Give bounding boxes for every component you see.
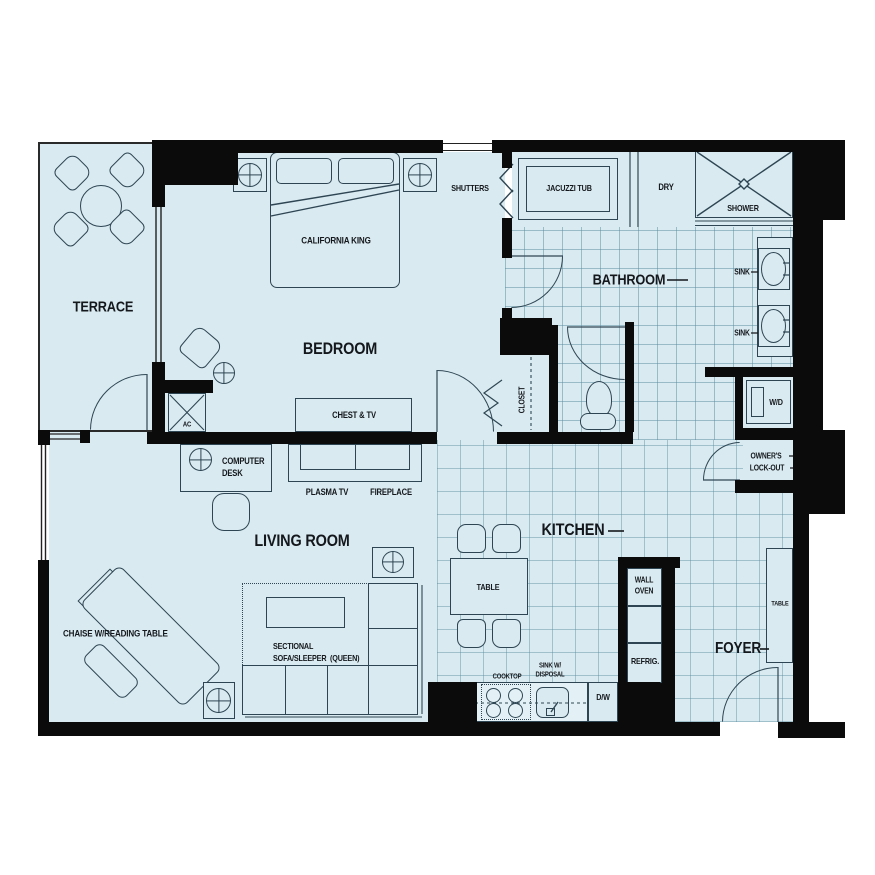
label-chest-tv: CHEST & TV xyxy=(332,410,376,420)
label-chaise: CHAISE W/READING TABLE xyxy=(63,629,168,640)
label-sectional-2: SOFA/SLEEPER (QUEEN) xyxy=(273,653,359,663)
kitchen-cabinet-box xyxy=(627,606,662,643)
wall xyxy=(618,568,627,683)
wall xyxy=(38,560,49,722)
sink-basin-upper xyxy=(761,252,786,286)
room-label-bedroom: BEDROOM xyxy=(303,339,377,359)
wall xyxy=(793,220,823,432)
label-fireplace: FIREPLACE xyxy=(370,487,412,497)
cabinet-divider xyxy=(355,444,356,470)
desk-chair xyxy=(212,493,250,531)
wall xyxy=(705,367,793,377)
label-washer-dryer: W/D xyxy=(769,397,783,407)
sectional-cushion-line xyxy=(368,665,369,715)
label-jacuzzi: JACUZZI TUB xyxy=(546,183,592,193)
label-owners-lockout-1: OWNER'S xyxy=(750,452,781,461)
label-wall-oven-2: OVEN xyxy=(635,587,654,596)
bed-pillow xyxy=(276,158,332,184)
room-label-kitchen: KITCHEN xyxy=(541,520,604,540)
wall xyxy=(735,377,743,440)
wall xyxy=(38,722,720,736)
dishwasher-box xyxy=(588,682,618,722)
lamp-icon xyxy=(189,448,212,471)
label-shower: SHOWER xyxy=(727,203,759,213)
room-label-bathroom: BATHROOM xyxy=(593,272,666,289)
kitchen-faucet xyxy=(546,708,555,716)
label-cooktop: COOKTOP xyxy=(493,674,522,681)
wall xyxy=(502,308,512,318)
room-label-foyer: FOYER xyxy=(715,640,761,658)
wall xyxy=(743,428,793,440)
kitchen-chair xyxy=(492,619,521,648)
wall xyxy=(735,480,743,493)
wall xyxy=(238,140,443,153)
wall xyxy=(38,430,50,445)
label-dry: DRY xyxy=(658,182,673,192)
sectional-cushion-line xyxy=(285,665,286,715)
wall xyxy=(625,322,634,432)
wall xyxy=(502,152,512,168)
wall xyxy=(793,514,809,724)
label-closet: CLOSET xyxy=(518,387,527,414)
lamp-icon xyxy=(238,163,262,187)
wall xyxy=(793,430,845,514)
wall xyxy=(549,325,558,432)
lamp-icon xyxy=(408,163,432,187)
sink-basin-lower xyxy=(761,309,786,343)
wall xyxy=(793,140,845,220)
wall xyxy=(500,318,552,355)
lamp-icon xyxy=(206,688,231,713)
label-sink-upper: SINK xyxy=(734,268,750,277)
sectional-cushion-line xyxy=(327,665,328,715)
cooktop-burner xyxy=(508,703,523,718)
label-sink-disposal-1: SINK W/ xyxy=(539,663,561,670)
toilet-bowl xyxy=(586,381,612,417)
label-computer-desk-1: COMPUTER xyxy=(222,456,264,466)
cooktop-burner xyxy=(486,703,501,718)
label-refrigerator: REFRIG. xyxy=(631,656,659,666)
label-ac: AC xyxy=(183,422,191,429)
sectional-cushion-line xyxy=(368,628,418,629)
label-computer-desk-2: DESK xyxy=(222,468,243,478)
wall xyxy=(505,140,793,152)
bedroom-window xyxy=(443,143,492,151)
washer-dryer-door xyxy=(751,387,764,417)
label-california-king: CALIFORNIA KING xyxy=(301,236,370,247)
floor-plan: TERRACE BEDROOM BATHROOM LIVING ROOM KIT… xyxy=(0,0,875,875)
wall xyxy=(428,682,477,726)
wall xyxy=(165,380,213,393)
kitchen-chair xyxy=(457,619,486,648)
lamp-icon xyxy=(213,362,235,384)
kitchen-chair xyxy=(492,524,521,553)
wall xyxy=(497,432,633,444)
label-foyer-table: TABLE xyxy=(771,601,788,608)
wall xyxy=(618,682,660,722)
wall xyxy=(152,185,165,207)
wall xyxy=(147,432,437,444)
lamp-icon xyxy=(382,551,404,573)
label-sink-lower: SINK xyxy=(734,329,750,338)
label-owners-lockout-2: LOCK-OUT xyxy=(750,464,785,473)
wall xyxy=(80,430,90,443)
label-shutters: SHUTTERS xyxy=(451,183,489,193)
owners-lockout-vestibule-floor xyxy=(743,440,793,482)
room-label-living: LIVING ROOM xyxy=(254,531,349,551)
sectional-bottom-section xyxy=(242,665,418,715)
wall xyxy=(152,140,238,185)
kitchen-chair xyxy=(457,524,486,553)
wall xyxy=(662,557,675,722)
label-kitchen-table: TABLE xyxy=(477,582,500,592)
wall xyxy=(743,480,793,493)
bed-pillow xyxy=(338,158,394,184)
label-dishwasher: D/W xyxy=(596,692,610,702)
living-window-lines xyxy=(42,445,46,560)
label-plasma-tv: PLASMA TV xyxy=(306,487,348,497)
wall xyxy=(778,722,845,738)
closet-floor xyxy=(505,355,549,432)
cooktop-burner xyxy=(508,688,523,703)
cooktop-burner xyxy=(486,688,501,703)
label-wall-oven-1: WALL xyxy=(635,576,654,585)
toilet-tank xyxy=(580,413,616,430)
coffee-table xyxy=(266,597,345,628)
room-label-terrace: TERRACE xyxy=(73,299,133,316)
wall xyxy=(502,218,512,258)
label-sink-disposal-2: DISPOSAL xyxy=(535,672,564,679)
label-sectional-1: SECTIONAL xyxy=(273,641,313,651)
